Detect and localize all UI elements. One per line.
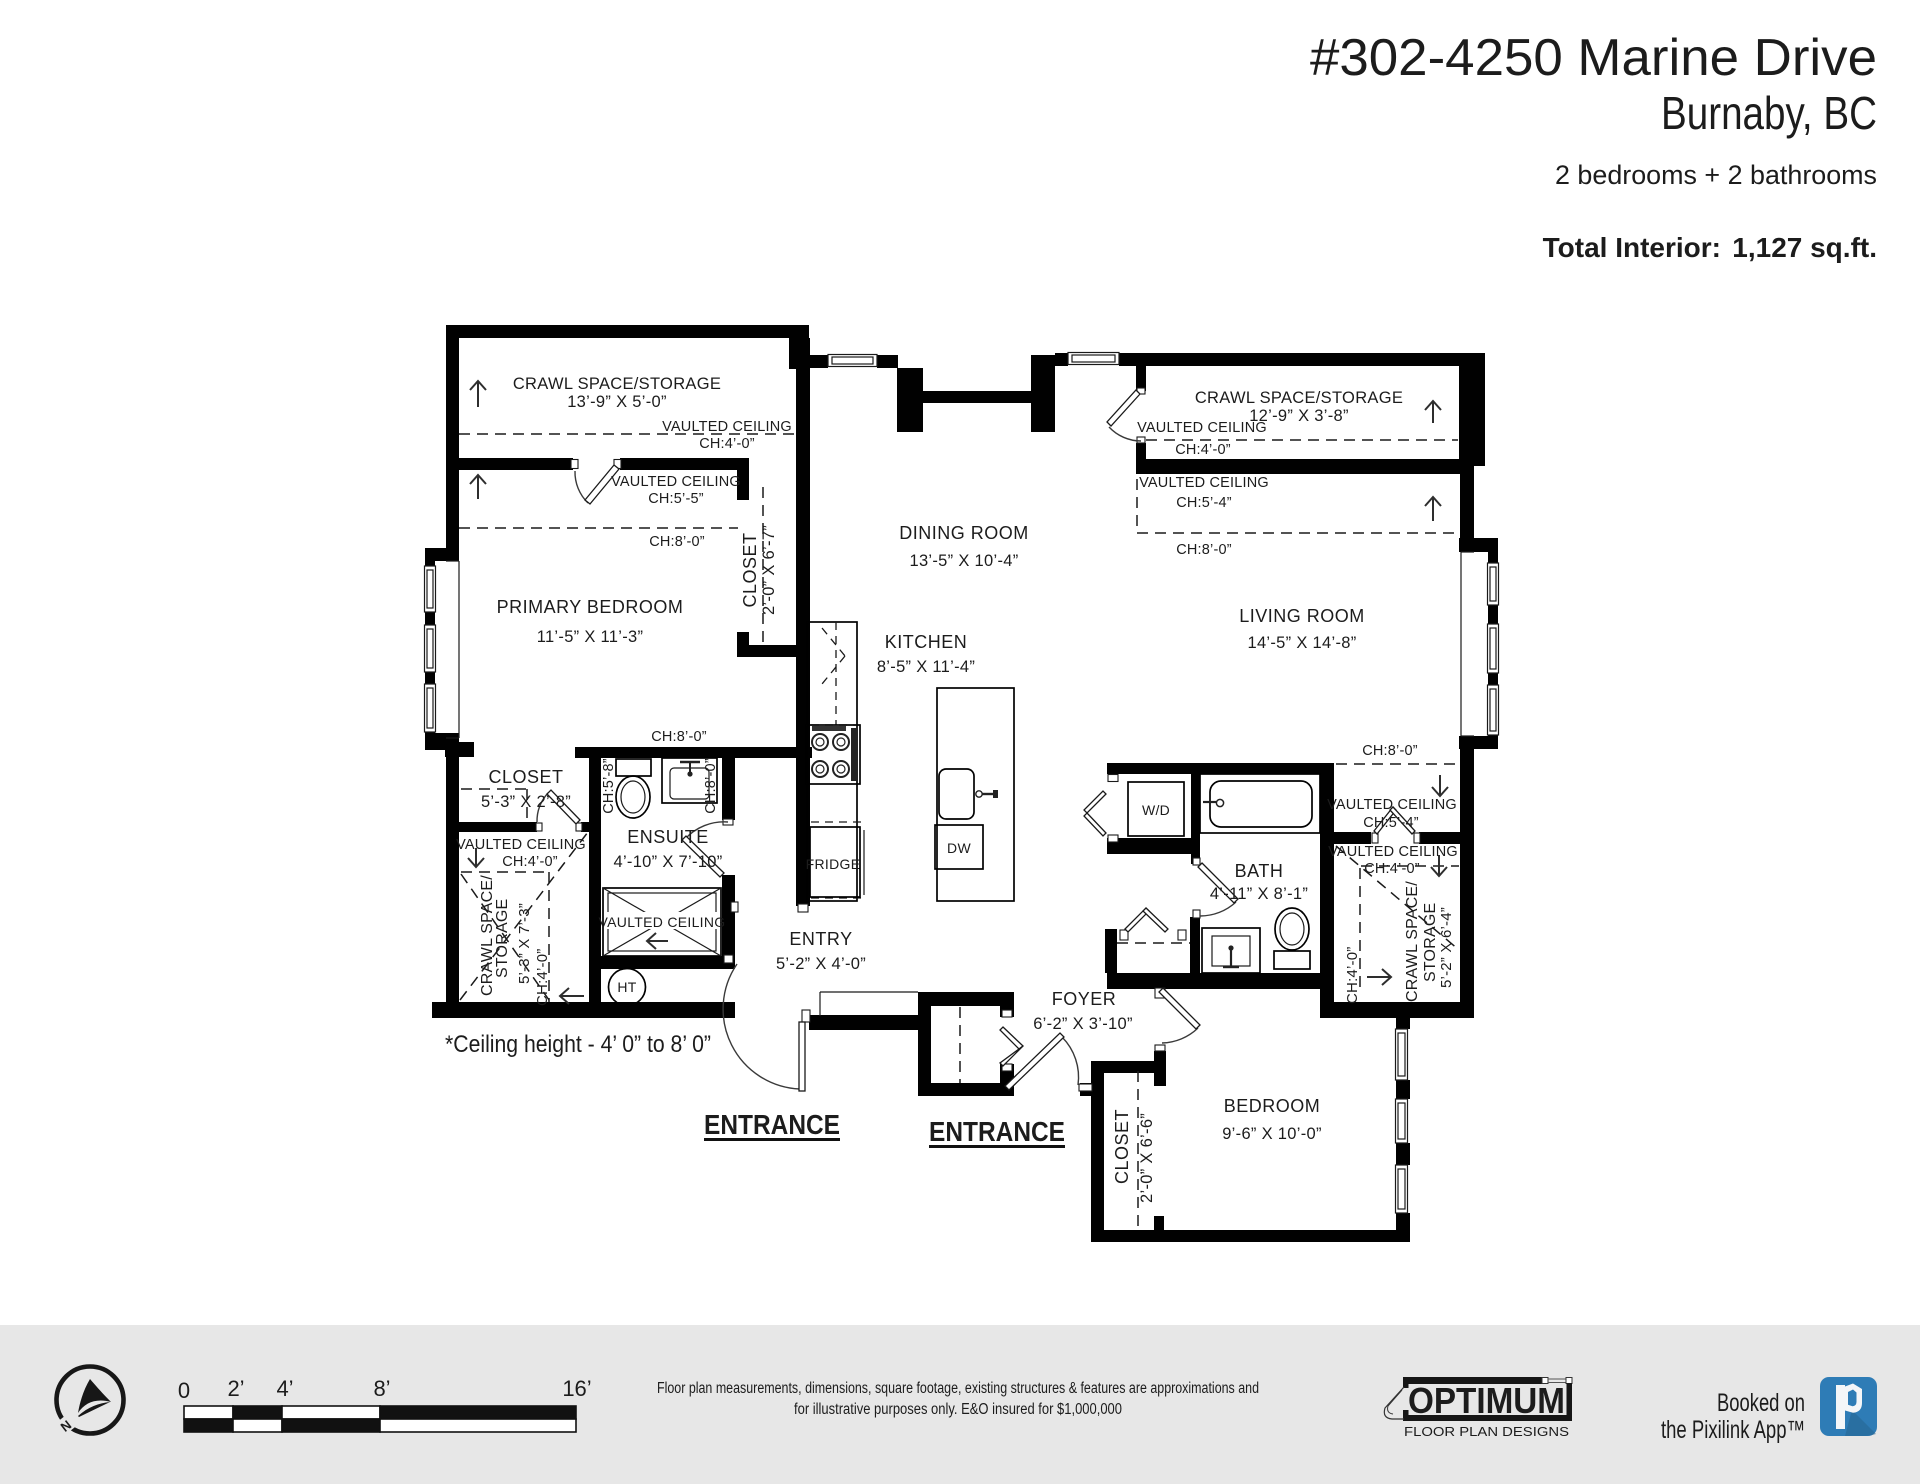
svg-text:CH:4’-0”: CH:4’-0” [502,854,558,870]
svg-text:CRAWL SPACE/: CRAWL SPACE/ [1404,881,1421,1002]
svg-text:LIVING ROOM: LIVING ROOM [1239,606,1365,626]
svg-text:CLOSET: CLOSET [1112,1109,1132,1184]
svg-text:CH:4’-0”: CH:4’-0” [1344,947,1361,1004]
svg-text:PRIMARY BEDROOM: PRIMARY BEDROOM [497,597,684,617]
svg-text:BATH: BATH [1235,861,1284,881]
svg-text:DW: DW [947,840,971,856]
svg-text:STORAGE: STORAGE [1422,903,1439,982]
svg-text:9’-6” X 10’-0”: 9’-6” X 10’-0” [1222,1125,1322,1143]
svg-text:CH:8’-0”: CH:8’-0” [703,758,719,814]
svg-text:Booked on: Booked on [1717,1389,1805,1417]
svg-text:2 bedrooms + 2 bathrooms: 2 bedrooms + 2 bathrooms [1555,160,1877,190]
svg-text:5’-2” X 4’-0”: 5’-2” X 4’-0” [776,955,866,973]
svg-text:CH:4’-0”: CH:4’-0” [1175,442,1231,458]
svg-text:CH:8’-0”: CH:8’-0” [1176,542,1232,558]
svg-text:for illustrative purposes only: for illustrative purposes only. E&O insu… [794,1401,1122,1418]
svg-text:KITCHEN: KITCHEN [885,632,968,652]
svg-text:5’-3” X 7’-3”: 5’-3” X 7’-3” [516,903,533,984]
svg-text:DINING ROOM: DINING ROOM [899,523,1029,543]
svg-text:5’-2” X 6’-4”: 5’-2” X 6’-4” [1438,907,1455,988]
svg-text:2’: 2’ [227,1376,244,1401]
svg-text:2’-0” X 6’-7”: 2’-0” X 6’-7” [760,525,778,615]
svg-text:VAULTED CEILING: VAULTED CEILING [1328,844,1458,860]
svg-text:VAULTED CEILING: VAULTED CEILING [662,419,792,435]
svg-text:4’-10” X 7’-10”: 4’-10” X 7’-10” [613,853,722,871]
svg-text:CH:4’-0”: CH:4’-0” [1364,861,1420,877]
svg-text:ENTRANCE: ENTRANCE [704,1109,840,1140]
svg-text:FOYER: FOYER [1052,989,1117,1009]
svg-text:CRAWL SPACE/STORAGE: CRAWL SPACE/STORAGE [1195,389,1403,407]
svg-text:8’: 8’ [373,1376,390,1401]
svg-text:CH:8’-0”: CH:8’-0” [1362,743,1418,759]
svg-text:Burnaby, BC: Burnaby, BC [1661,87,1877,139]
svg-text:ENSUITE: ENSUITE [627,827,709,847]
svg-text:14’-5” X 14’-8”: 14’-5” X 14’-8” [1247,634,1356,652]
svg-text:13’-9” X 5’-0”: 13’-9” X 5’-0” [567,393,667,411]
svg-text:CH:8’-0”: CH:8’-0” [649,534,705,550]
svg-text:Floor plan measurements, dimen: Floor plan measurements, dimensions, squ… [657,1380,1259,1397]
svg-text:CLOSET: CLOSET [488,767,563,787]
svg-text:CH:4’-0”: CH:4’-0” [534,949,551,1006]
svg-text:CH:5’-4”: CH:5’-4” [1176,495,1232,511]
svg-text:2’-0” X 6’-6”: 2’-0” X 6’-6” [1138,1113,1156,1203]
svg-text:CH:5’-4”: CH:5’-4” [1363,815,1419,831]
svg-text:#302-4250 Marine Drive: #302-4250 Marine Drive [1310,29,1877,87]
svg-text:6’-2” X 3’-10”: 6’-2” X 3’-10” [1033,1015,1133,1033]
svg-text:VAULTED CEILING: VAULTED CEILING [1327,797,1457,813]
svg-text:STORAGE: STORAGE [494,899,511,978]
svg-text:4’-11” X 8’-1”: 4’-11” X 8’-1” [1210,885,1308,903]
svg-text:VAULTED CEILING: VAULTED CEILING [1139,475,1269,491]
svg-text:11’-5” X 11’-3”: 11’-5” X 11’-3” [537,628,644,646]
svg-text:CH:4’-0”: CH:4’-0” [699,436,755,452]
svg-text:Total Interior:: Total Interior: [1543,232,1721,263]
svg-text:0: 0 [178,1378,190,1403]
svg-text:OPTIMUM: OPTIMUM [1408,1380,1565,1421]
svg-text:4’: 4’ [276,1376,293,1401]
svg-text:the Pixilink App™: the Pixilink App™ [1661,1416,1805,1444]
svg-text:13’-5” X 10’-4”: 13’-5” X 10’-4” [909,552,1018,570]
svg-text:CH:5’-5”: CH:5’-5” [648,491,704,507]
svg-text:W/D: W/D [1142,802,1170,818]
svg-text:BEDROOM: BEDROOM [1224,1096,1321,1116]
svg-text:CRAWL SPACE/STORAGE: CRAWL SPACE/STORAGE [513,375,721,393]
svg-text:8’-5” X 11’-4”: 8’-5” X 11’-4” [877,658,975,676]
svg-text:HT: HT [617,979,636,995]
svg-text:FLOOR PLAN DESIGNS: FLOOR PLAN DESIGNS [1404,1424,1569,1439]
svg-text:VAULTED CEILING: VAULTED CEILING [456,837,586,853]
svg-text:*Ceiling height - 4’ 0” to 8’: *Ceiling height - 4’ 0” to 8’ 0” [445,1031,711,1058]
svg-text:VAULTED CEILING: VAULTED CEILING [1137,420,1267,436]
svg-text:VAULTED CEILING: VAULTED CEILING [599,914,726,930]
svg-text:CH:5’-8”: CH:5’-8” [601,758,617,814]
svg-text:VAULTED CEILING: VAULTED CEILING [611,474,741,490]
svg-text:16’: 16’ [562,1376,591,1401]
svg-text:5’-3” X 2’-8”: 5’-3” X 2’-8” [481,793,571,811]
svg-text:FRIDGE: FRIDGE [806,856,861,872]
svg-text:ENTRANCE: ENTRANCE [929,1116,1065,1147]
svg-text:ENTRY: ENTRY [789,929,852,949]
svg-text:CH:8’-0”: CH:8’-0” [651,729,707,745]
svg-text:1,127 sq.ft.: 1,127 sq.ft. [1732,232,1877,263]
svg-text:CLOSET: CLOSET [740,532,760,607]
